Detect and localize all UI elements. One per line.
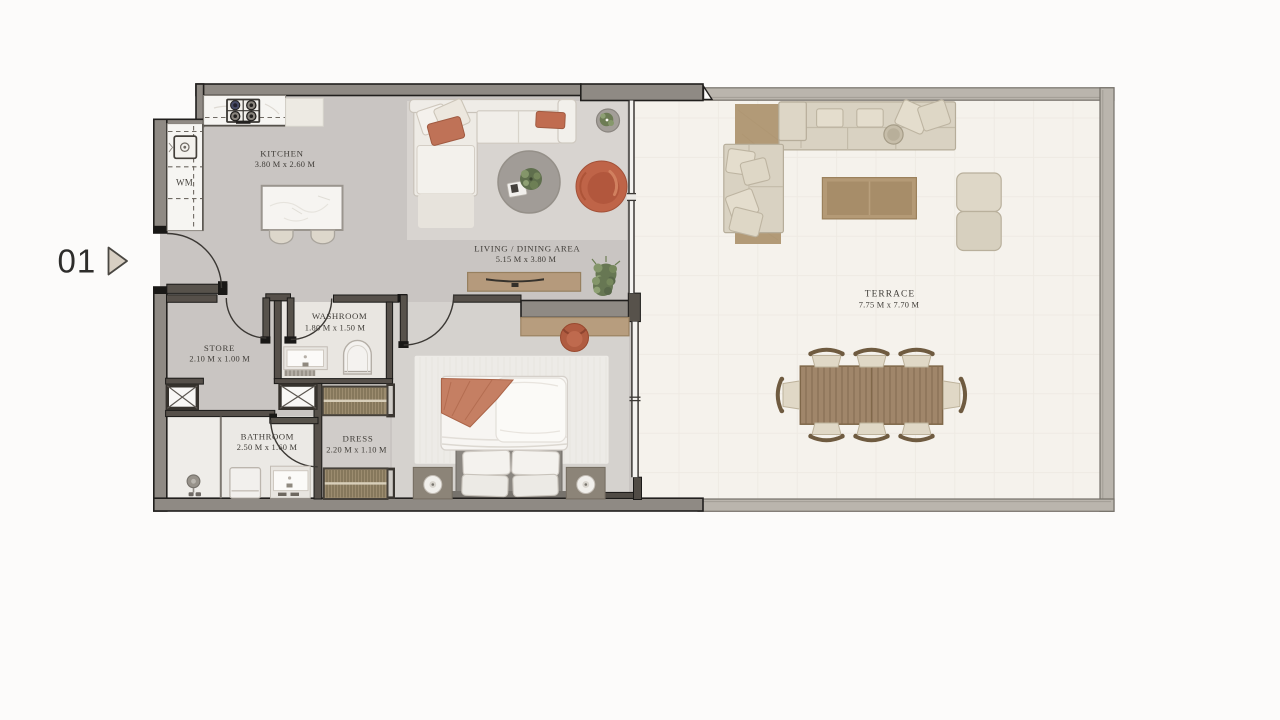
svg-text:2.20 M x 1.10 M: 2.20 M x 1.10 M bbox=[326, 446, 387, 455]
svg-text:3.80 M x 2.60 M: 3.80 M x 2.60 M bbox=[255, 160, 316, 169]
svg-text:LIVING / DINING AREA: LIVING / DINING AREA bbox=[474, 244, 580, 254]
svg-text:2.50 M x 1.60 M: 2.50 M x 1.60 M bbox=[237, 443, 298, 452]
svg-text:5.15 M x 3.80 M: 5.15 M x 3.80 M bbox=[496, 255, 557, 264]
svg-text:2.10 M x 1.00 M: 2.10 M x 1.00 M bbox=[189, 355, 250, 364]
svg-text:WM: WM bbox=[176, 178, 193, 188]
svg-text:BATHROOM: BATHROOM bbox=[241, 432, 294, 442]
svg-text:01: 01 bbox=[58, 243, 97, 280]
svg-text:1.80 M x 1.50 M: 1.80 M x 1.50 M bbox=[305, 324, 366, 333]
svg-text:KITCHEN: KITCHEN bbox=[260, 149, 304, 159]
svg-text:DRESS: DRESS bbox=[343, 434, 374, 444]
svg-text:STORE: STORE bbox=[204, 343, 235, 353]
svg-text:7.75 M x 7.70 M: 7.75 M x 7.70 M bbox=[859, 301, 920, 310]
svg-text:TERRACE: TERRACE bbox=[865, 290, 915, 300]
svg-text:WASHROOM: WASHROOM bbox=[312, 311, 367, 321]
